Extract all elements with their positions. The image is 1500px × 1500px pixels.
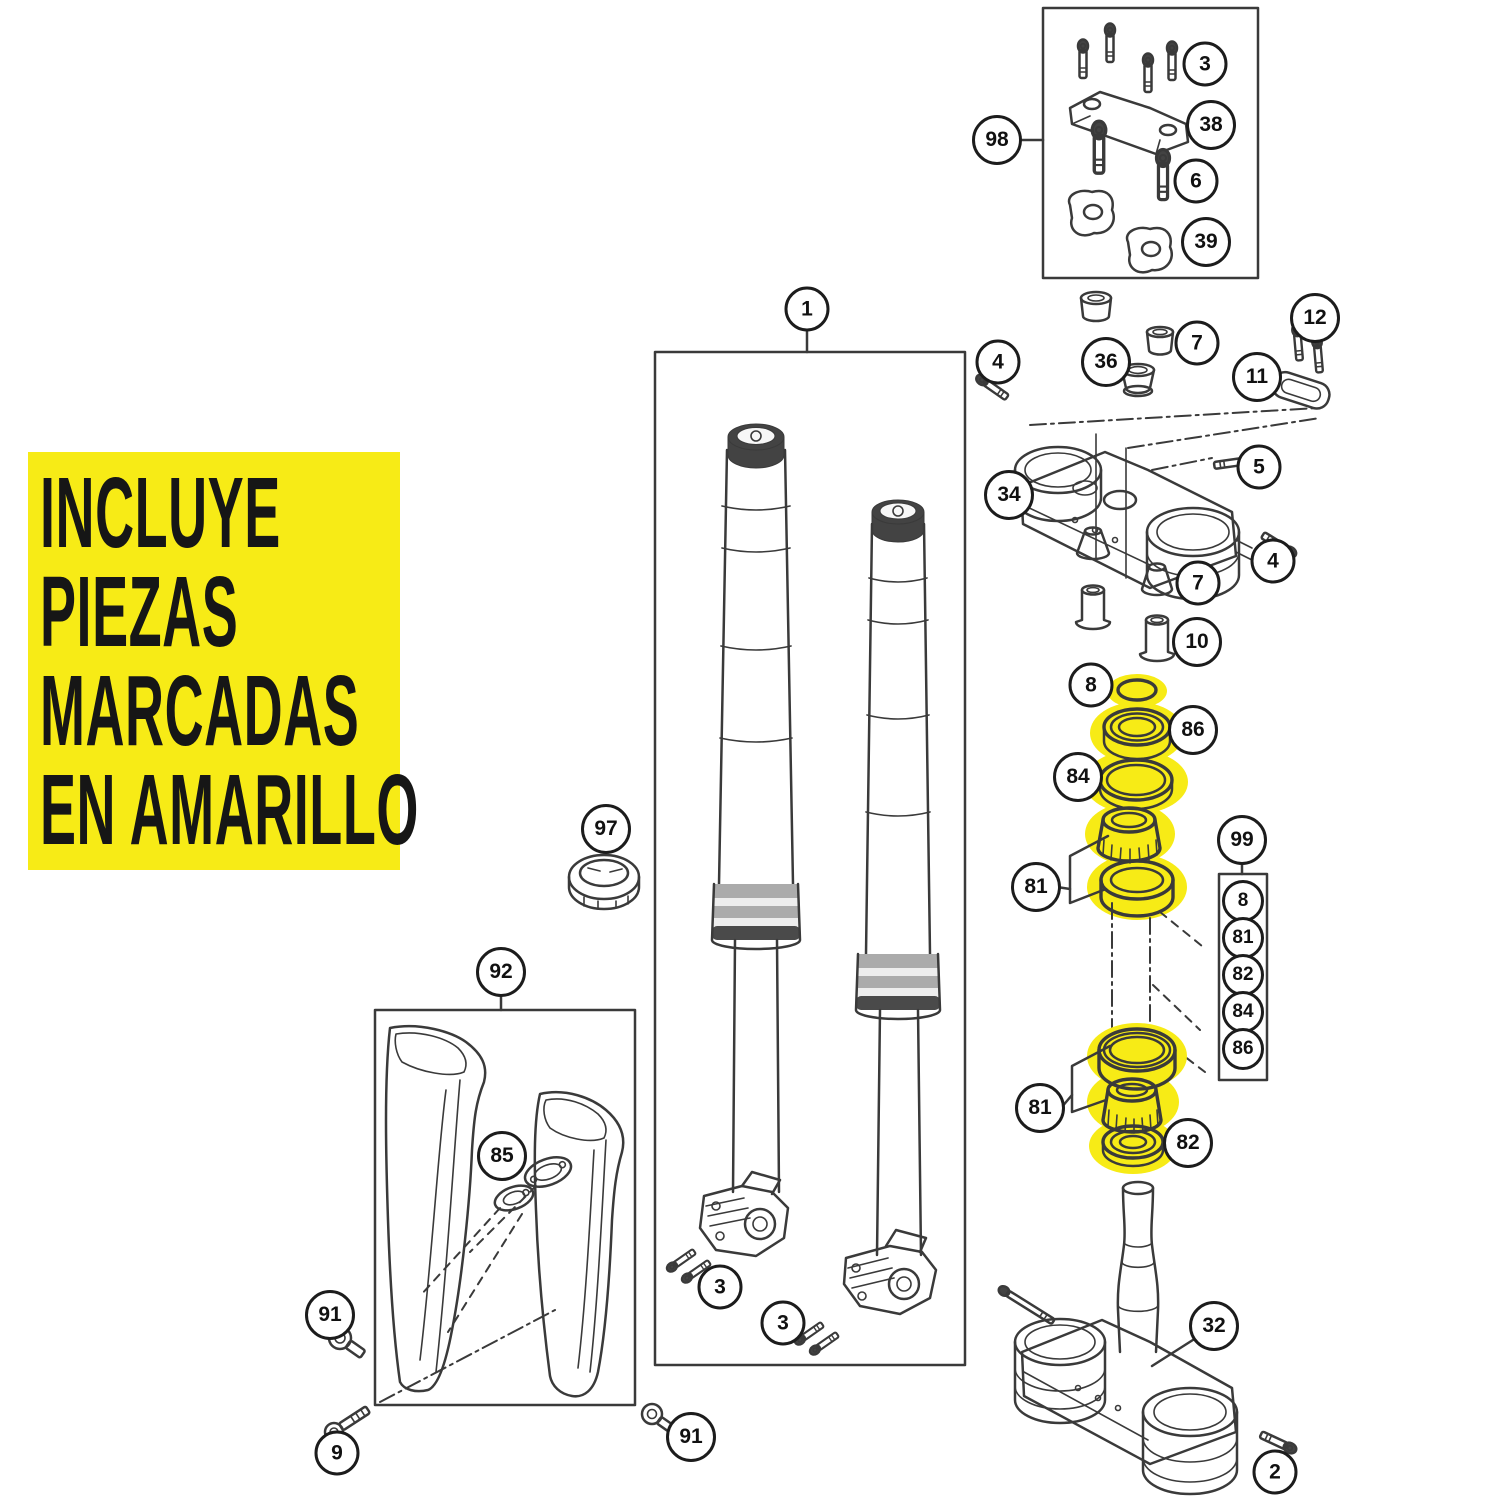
note-line-3: MARCADAS (40, 662, 234, 761)
kit-item-8: 8 (1222, 880, 1264, 922)
callout-97: 97 (581, 804, 631, 854)
fork-leg-left (700, 424, 800, 1256)
fork-collar-right (856, 954, 940, 1019)
handlebar-clamp-right (1127, 228, 1172, 272)
fork-guard-left (386, 1026, 485, 1391)
note-line-1: INCLUYE (40, 464, 234, 563)
callout-7b: 7 (1176, 561, 1221, 606)
callout-3: 3 (1183, 42, 1228, 87)
callout-81b: 81 (1015, 1083, 1065, 1133)
parts-diagram: INCLUYE PIEZAS MARCADAS EN AMARILLO 1 98… (0, 0, 1500, 1500)
kit-item-82: 82 (1222, 954, 1264, 996)
callout-85: 85 (477, 1131, 527, 1181)
bottom-triple-clamp (997, 1182, 1298, 1494)
callout-84: 84 (1053, 752, 1103, 802)
fork-leg-right (665, 500, 940, 1357)
callout-12: 12 (1290, 293, 1340, 343)
callout-2: 2 (1253, 1450, 1298, 1495)
callout-4a: 4 (976, 340, 1021, 385)
callout-4b: 4 (1251, 539, 1296, 584)
callout-3c: 3 (761, 1301, 806, 1346)
fork-protector-box (375, 994, 635, 1405)
kit-item-86: 86 (1222, 1028, 1264, 1070)
callout-6: 6 (1174, 159, 1219, 204)
handlebar-bridge (1070, 92, 1188, 154)
callout-10: 10 (1172, 617, 1222, 667)
callout-3b: 3 (698, 1265, 743, 1310)
fork-foot-right (844, 1230, 936, 1314)
fork-collar-left (712, 884, 800, 949)
callout-86: 86 (1168, 705, 1218, 755)
callout-91b: 91 (666, 1412, 716, 1462)
callout-99: 99 (1217, 815, 1267, 865)
note-line-2: PIEZAS (40, 563, 234, 662)
yellow-note: INCLUYE PIEZAS MARCADAS EN AMARILLO (28, 452, 400, 870)
callout-34: 34 (984, 470, 1034, 520)
fork-guard-right (535, 1092, 623, 1396)
callout-39: 39 (1181, 217, 1231, 267)
note-line-4: EN AMARILLO (40, 761, 234, 860)
callout-11: 11 (1232, 352, 1282, 402)
callout-81a: 81 (1011, 862, 1061, 912)
callout-7a: 7 (1175, 321, 1220, 366)
callout-38: 38 (1186, 100, 1236, 150)
callout-98: 98 (972, 115, 1022, 165)
callout-91a: 91 (305, 1290, 355, 1340)
callout-9: 9 (315, 1431, 360, 1476)
callout-92: 92 (476, 947, 526, 997)
kit-item-84: 84 (1222, 991, 1264, 1033)
handlebar-clamp-left (1069, 191, 1114, 235)
callout-5: 5 (1237, 445, 1282, 490)
adjusting-ring-97 (569, 855, 639, 909)
callout-1: 1 (785, 287, 830, 332)
fork-foot-left (700, 1172, 788, 1256)
kit-item-81: 81 (1222, 917, 1264, 959)
callout-82: 82 (1163, 1118, 1213, 1168)
callout-32: 32 (1189, 1301, 1239, 1351)
callout-36: 36 (1081, 337, 1131, 387)
callout-8: 8 (1069, 663, 1114, 708)
